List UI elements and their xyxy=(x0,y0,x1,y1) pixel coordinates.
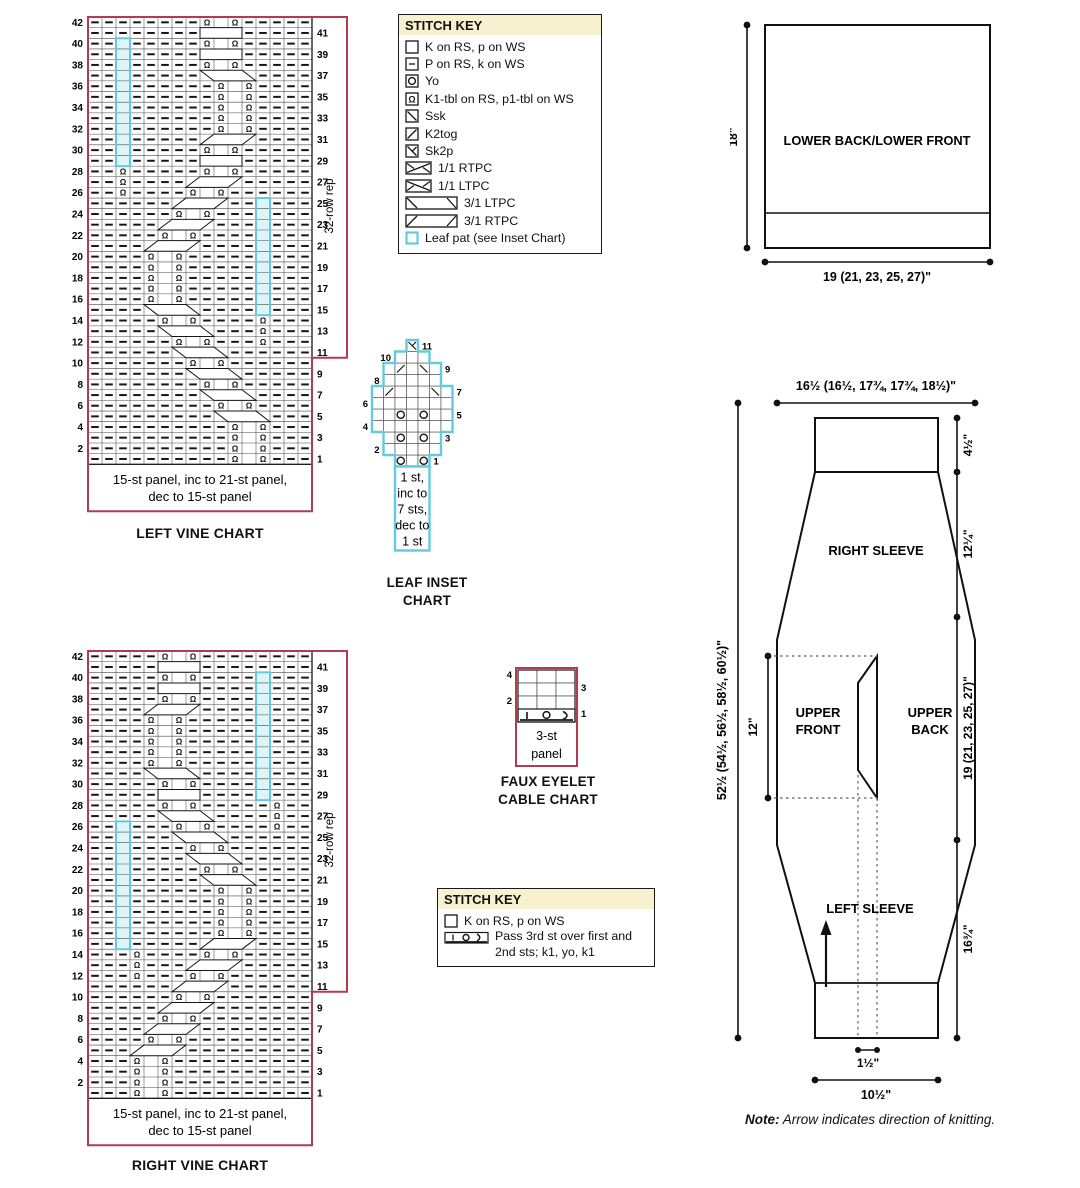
svg-text:Ω: Ω xyxy=(134,951,141,960)
svg-text:34: 34 xyxy=(72,737,84,748)
svg-text:12": 12" xyxy=(746,717,760,736)
svg-text:12: 12 xyxy=(72,337,84,348)
rtpc11-symbol-icon xyxy=(405,161,432,175)
leaf-inset-chart-svg: 11975311086421 st,inc to7 sts,dec to1 st xyxy=(352,335,502,567)
right-vine-caption-2: dec to 15-st panel xyxy=(148,1123,251,1138)
key-entry-ltpc11: 1/1 LTPC xyxy=(405,177,595,194)
left-vine-chart: ΩΩΩΩΩΩΩΩΩΩΩΩΩΩΩΩΩΩΩΩΩΩΩΩΩΩΩΩΩΩΩΩΩΩΩΩΩΩΩΩ… xyxy=(62,14,362,559)
svg-text:Ω: Ω xyxy=(190,189,197,198)
svg-text:Ω: Ω xyxy=(218,844,225,853)
svg-text:Ω: Ω xyxy=(232,423,239,432)
leaf-inset-title-1: LEAF INSET xyxy=(352,575,502,590)
svg-text:Ω: Ω xyxy=(176,823,183,832)
svg-text:Ω: Ω xyxy=(134,1068,141,1077)
svg-text:1: 1 xyxy=(581,709,587,720)
svg-text:Ω: Ω xyxy=(190,801,197,810)
svg-text:33: 33 xyxy=(317,114,329,125)
svg-text:14: 14 xyxy=(72,316,84,327)
svg-text:17: 17 xyxy=(317,284,329,295)
svg-text:Ω: Ω xyxy=(162,1014,169,1023)
faux-eyelet-generated: 42313-stpanel xyxy=(507,668,587,766)
svg-text:Ω: Ω xyxy=(176,993,183,1002)
svg-text:Ω: Ω xyxy=(232,61,239,70)
svg-text:Ω: Ω xyxy=(204,951,211,960)
pass3-symbol-icon xyxy=(444,931,489,945)
svg-text:28: 28 xyxy=(72,167,84,178)
svg-text:Ω: Ω xyxy=(204,210,211,219)
upper-back-label-1: UPPER xyxy=(908,705,953,720)
key-entry-k: K on RS, p on WS xyxy=(405,38,595,55)
svg-text:Ω: Ω xyxy=(246,919,253,928)
left-vine-chart-svg: ΩΩΩΩΩΩΩΩΩΩΩΩΩΩΩΩΩΩΩΩΩΩΩΩΩΩΩΩΩΩΩΩΩΩΩΩΩΩΩΩ… xyxy=(62,14,362,516)
top-cuff xyxy=(815,418,938,472)
svg-text:Ω: Ω xyxy=(260,317,267,326)
svg-text:Ω: Ω xyxy=(204,61,211,70)
svg-text:Ω: Ω xyxy=(162,231,169,240)
svg-text:Ω: Ω xyxy=(232,18,239,27)
svg-text:Ω: Ω xyxy=(232,951,239,960)
svg-text:9: 9 xyxy=(317,369,323,380)
key-entry-k1tbl: ΩK1-tbl on RS, p1-tbl on WS xyxy=(405,90,595,107)
lower-schematic-height-dim: 18" xyxy=(730,22,750,252)
right-dim-column: 4½" 12¼" 19 (21, 23, 25, 27)" 16¾" xyxy=(954,415,975,1042)
svg-text:19 (21, 23, 25, 27)": 19 (21, 23, 25, 27)" xyxy=(823,270,931,284)
key-entry-label: K on RS, p on WS xyxy=(464,914,565,928)
svg-text:Ω: Ω xyxy=(218,887,225,896)
svg-text:7 sts,: 7 sts, xyxy=(397,503,427,517)
svg-text:Ω: Ω xyxy=(190,780,197,789)
svg-text:18: 18 xyxy=(72,907,84,918)
svg-text:2: 2 xyxy=(507,696,512,707)
svg-text:Ω: Ω xyxy=(134,1078,141,1087)
svg-text:Ω: Ω xyxy=(176,274,183,283)
svg-text:9: 9 xyxy=(445,364,450,375)
svg-text:19: 19 xyxy=(317,263,329,274)
right-vine-chart: ΩΩΩΩΩΩΩΩΩΩΩΩΩΩΩΩΩΩΩΩΩΩΩΩΩΩΩΩΩΩΩΩΩΩΩΩΩΩΩΩ… xyxy=(62,648,362,1188)
stitch-key-2-list: K on RS, p on WSPass 3rd st over first a… xyxy=(438,909,654,966)
svg-text:Ω: Ω xyxy=(148,295,155,304)
svg-text:2: 2 xyxy=(374,445,379,456)
svg-text:Ω: Ω xyxy=(162,1078,169,1087)
svg-text:Ω: Ω xyxy=(190,652,197,661)
svg-text:31: 31 xyxy=(317,135,329,146)
svg-text:3: 3 xyxy=(445,433,450,444)
svg-text:Ω: Ω xyxy=(218,919,225,928)
svg-text:Ω: Ω xyxy=(204,993,211,1002)
key-entry-label: P on RS, k on WS xyxy=(425,57,525,71)
svg-text:1 st,: 1 st, xyxy=(400,471,424,485)
svg-text:16: 16 xyxy=(72,295,84,306)
svg-text:Ω: Ω xyxy=(246,402,253,411)
svg-text:Ω: Ω xyxy=(148,727,155,736)
svg-text:18: 18 xyxy=(72,273,84,284)
svg-text:Ω: Ω xyxy=(176,1036,183,1045)
svg-text:Ω: Ω xyxy=(232,434,239,443)
svg-text:1: 1 xyxy=(317,1088,323,1099)
upper-front-label-2: FRONT xyxy=(796,722,841,737)
svg-text:5: 5 xyxy=(317,412,323,423)
svg-text:3: 3 xyxy=(317,1067,323,1078)
svg-text:41: 41 xyxy=(317,28,329,39)
svg-text:Ω: Ω xyxy=(260,434,267,443)
svg-text:Ω: Ω xyxy=(162,801,169,810)
svg-text:Ω: Ω xyxy=(274,812,281,821)
svg-text:39: 39 xyxy=(317,684,329,695)
svg-text:Ω: Ω xyxy=(148,748,155,757)
svg-text:Ω: Ω xyxy=(246,114,253,123)
svg-text:Ω: Ω xyxy=(204,40,211,49)
rtpc31-symbol-icon xyxy=(405,214,458,228)
key-entry-rtpc11: 1/1 RTPC xyxy=(405,160,595,177)
left-sleeve-label: LEFT SLEEVE xyxy=(826,901,914,916)
svg-text:Ω: Ω xyxy=(218,972,225,981)
key-entry-label: K1-tbl on RS, p1-tbl on WS xyxy=(425,92,574,106)
right-vine-caption-1: 15-st panel, inc to 21-st panel, xyxy=(113,1106,287,1121)
stitch-key-1-title: STITCH KEY xyxy=(399,15,601,35)
svg-text:Ω: Ω xyxy=(260,338,267,347)
svg-text:Ω: Ω xyxy=(232,865,239,874)
svg-text:10½": 10½" xyxy=(861,1088,891,1102)
svg-text:panel: panel xyxy=(531,747,562,761)
svg-text:41: 41 xyxy=(317,662,329,673)
svg-text:Ω: Ω xyxy=(204,823,211,832)
cap-depth-dim: 12¼" xyxy=(961,529,975,558)
svg-text:7: 7 xyxy=(457,387,462,398)
svg-text:Ω: Ω xyxy=(120,167,127,176)
svg-text:Ω: Ω xyxy=(162,652,169,661)
svg-text:31: 31 xyxy=(317,769,329,780)
svg-text:Ω: Ω xyxy=(148,285,155,294)
right-vine-chart-svg: ΩΩΩΩΩΩΩΩΩΩΩΩΩΩΩΩΩΩΩΩΩΩΩΩΩΩΩΩΩΩΩΩΩΩΩΩΩΩΩΩ… xyxy=(62,648,362,1150)
ltpc31-symbol-icon xyxy=(405,196,458,210)
svg-text:Ω: Ω xyxy=(134,961,141,970)
svg-text:1: 1 xyxy=(434,456,440,467)
svg-text:Ω: Ω xyxy=(232,455,239,464)
svg-text:10: 10 xyxy=(72,993,84,1004)
svg-text:Ω: Ω xyxy=(408,94,415,104)
body-width-dim: 19 (21, 23, 25, 27)" xyxy=(961,676,975,780)
svg-text:Ω: Ω xyxy=(120,189,127,198)
k-symbol-icon xyxy=(444,914,458,928)
svg-text:32: 32 xyxy=(72,124,84,135)
svg-text:3: 3 xyxy=(581,683,586,694)
svg-text:Ω: Ω xyxy=(176,748,183,757)
svg-text:3-st: 3-st xyxy=(536,729,557,743)
ltpc11-symbol-icon xyxy=(405,179,432,193)
lower-schematic-label: LOWER BACK/LOWER FRONT xyxy=(784,133,971,148)
svg-text:4: 4 xyxy=(363,422,369,433)
key-entry-ssk: Ssk xyxy=(405,108,595,125)
svg-text:Ω: Ω xyxy=(176,285,183,294)
svg-text:Ω: Ω xyxy=(190,1014,197,1023)
svg-text:16: 16 xyxy=(72,929,84,940)
svg-text:40: 40 xyxy=(72,673,84,684)
svg-text:Ω: Ω xyxy=(176,210,183,219)
key-entry-k2tog: K2tog xyxy=(405,125,595,142)
svg-text:8: 8 xyxy=(77,380,83,391)
sk2p-symbol-icon xyxy=(405,144,419,158)
svg-text:Ω: Ω xyxy=(232,380,239,389)
left-vine-rep-label: 32-row rep xyxy=(324,179,336,234)
svg-text:Ω: Ω xyxy=(260,327,267,336)
svg-text:33: 33 xyxy=(317,748,329,759)
svg-text:Ω: Ω xyxy=(162,1068,169,1077)
svg-text:21: 21 xyxy=(317,875,329,886)
svg-text:Ω: Ω xyxy=(260,444,267,453)
left-vine-chart-title: LEFT VINE CHART xyxy=(80,525,320,541)
svg-text:Ω: Ω xyxy=(162,1057,169,1066)
faux-eyelet-chart-svg: 42313-stpanel xyxy=(488,662,608,768)
faux-eyelet-title-2: CABLE CHART xyxy=(488,792,608,807)
svg-text:Ω: Ω xyxy=(204,865,211,874)
note-text: Arrow indicates direction of knitting. xyxy=(780,1112,996,1127)
svg-text:Ω: Ω xyxy=(190,359,197,368)
svg-text:Ω: Ω xyxy=(190,317,197,326)
svg-text:Ω: Ω xyxy=(162,674,169,683)
p-symbol-icon xyxy=(405,57,419,71)
svg-text:13: 13 xyxy=(317,327,329,338)
svg-text:14: 14 xyxy=(72,950,84,961)
svg-text:Ω: Ω xyxy=(232,146,239,155)
svg-text:Ω: Ω xyxy=(218,402,225,411)
svg-text:8: 8 xyxy=(374,376,379,387)
svg-text:10: 10 xyxy=(72,359,84,370)
svg-text:Ω: Ω xyxy=(274,823,281,832)
key-entry-label: Leaf pat (see Inset Chart) xyxy=(425,231,566,245)
key-entry-label: K on RS, p on WS xyxy=(425,40,526,54)
svg-text:Ω: Ω xyxy=(162,317,169,326)
svg-text:Ω: Ω xyxy=(148,253,155,262)
svg-text:9: 9 xyxy=(317,1003,323,1014)
svg-text:Ω: Ω xyxy=(148,759,155,768)
svg-text:Ω: Ω xyxy=(162,695,169,704)
key-entry-label: 3/1 LTPC xyxy=(464,196,515,210)
svg-text:Ω: Ω xyxy=(232,444,239,453)
svg-text:29: 29 xyxy=(317,790,329,801)
k1tbl-symbol-icon: Ω xyxy=(405,92,419,106)
svg-text:Ω: Ω xyxy=(260,423,267,432)
svg-text:8: 8 xyxy=(77,1014,83,1025)
right-vine-chart-title: RIGHT VINE CHART xyxy=(80,1157,320,1173)
svg-text:42: 42 xyxy=(72,18,84,29)
svg-text:Ω: Ω xyxy=(246,897,253,906)
svg-text:Ω: Ω xyxy=(218,897,225,906)
svg-text:Ω: Ω xyxy=(204,18,211,27)
svg-text:Ω: Ω xyxy=(274,801,281,810)
stitch-key-2: STITCH KEY K on RS, p on WSPass 3rd st o… xyxy=(437,888,655,967)
svg-text:Ω: Ω xyxy=(162,780,169,789)
svg-text:26: 26 xyxy=(72,188,84,199)
svg-text:1½": 1½" xyxy=(857,1056,879,1070)
svg-text:Ω: Ω xyxy=(204,167,211,176)
svg-text:24: 24 xyxy=(72,210,84,221)
svg-text:20: 20 xyxy=(72,252,84,263)
svg-text:inc to: inc to xyxy=(397,487,427,501)
svg-text:Ω: Ω xyxy=(176,738,183,747)
svg-text:13: 13 xyxy=(317,961,329,972)
ssk-symbol-icon xyxy=(405,109,419,123)
svg-text:Ω: Ω xyxy=(148,1036,155,1045)
note-prefix: Note: xyxy=(745,1112,780,1127)
svg-text:26: 26 xyxy=(72,822,84,833)
svg-text:5: 5 xyxy=(457,410,463,421)
key-entry-label: Yo xyxy=(425,74,439,88)
svg-text:37: 37 xyxy=(317,705,329,716)
svg-text:15: 15 xyxy=(317,939,329,950)
svg-text:24: 24 xyxy=(72,844,84,855)
svg-text:Ω: Ω xyxy=(260,455,267,464)
svg-text:20: 20 xyxy=(72,886,84,897)
svg-text:10: 10 xyxy=(380,353,391,364)
svg-text:22: 22 xyxy=(72,865,84,876)
svg-text:Ω: Ω xyxy=(218,125,225,134)
svg-text:Ω: Ω xyxy=(190,972,197,981)
svg-text:15: 15 xyxy=(317,305,329,316)
leaf-symbol-icon xyxy=(405,231,419,245)
key-entry-ltpc31: 3/1 LTPC xyxy=(405,195,595,212)
svg-text:18": 18" xyxy=(730,127,740,146)
svg-text:Ω: Ω xyxy=(176,759,183,768)
svg-text:6: 6 xyxy=(363,399,368,410)
svg-text:30: 30 xyxy=(72,146,84,157)
svg-text:Ω: Ω xyxy=(190,674,197,683)
svg-text:dec to: dec to xyxy=(395,519,429,533)
svg-text:16½ (16½, 17¾, 17¾, 18½)": 16½ (16½, 17¾, 17¾, 18½)" xyxy=(796,379,956,393)
svg-text:4: 4 xyxy=(77,1057,83,1068)
note: Note: Arrow indicates direction of knitt… xyxy=(745,1112,1080,1127)
key-entry-label: K2tog xyxy=(425,127,457,141)
svg-text:Ω: Ω xyxy=(176,263,183,272)
svg-text:Ω: Ω xyxy=(134,1057,141,1066)
svg-text:36: 36 xyxy=(72,82,84,93)
svg-text:Ω: Ω xyxy=(218,114,225,123)
svg-text:Ω: Ω xyxy=(176,716,183,725)
yo-symbol-icon xyxy=(405,74,419,88)
key-entry-label: Sk2p xyxy=(425,144,453,158)
svg-text:38: 38 xyxy=(72,60,84,71)
svg-text:28: 28 xyxy=(72,801,84,812)
svg-text:5: 5 xyxy=(317,1046,323,1057)
key-entry-rtpc31: 3/1 RTPC xyxy=(405,212,595,229)
stitch-key-1: STITCH KEY K on RS, p on WSP on RS, k on… xyxy=(398,14,602,254)
svg-text:42: 42 xyxy=(72,652,84,663)
svg-text:Ω: Ω xyxy=(148,738,155,747)
svg-text:37: 37 xyxy=(317,71,329,82)
svg-text:Ω: Ω xyxy=(190,231,197,240)
svg-text:Ω: Ω xyxy=(176,253,183,262)
svg-text:12: 12 xyxy=(72,971,84,982)
svg-text:Ω: Ω xyxy=(176,338,183,347)
svg-text:Ω: Ω xyxy=(204,380,211,389)
svg-text:Ω: Ω xyxy=(246,93,253,102)
svg-text:Ω: Ω xyxy=(218,908,225,917)
svg-text:34: 34 xyxy=(72,103,84,114)
svg-text:Ω: Ω xyxy=(176,295,183,304)
svg-text:35: 35 xyxy=(317,92,329,103)
right-sleeve-label: RIGHT SLEEVE xyxy=(828,543,924,558)
svg-text:Ω: Ω xyxy=(218,93,225,102)
left-vine-chart-generated: ΩΩΩΩΩΩΩΩΩΩΩΩΩΩΩΩΩΩΩΩΩΩΩΩΩΩΩΩΩΩΩΩΩΩΩΩΩΩΩΩ… xyxy=(72,17,347,511)
key-entry-pass3: Pass 3rd st over first and 2nd sts; k1, … xyxy=(444,929,648,960)
left-vine-caption-2: dec to 15-st panel xyxy=(148,489,251,504)
svg-text:Ω: Ω xyxy=(218,82,225,91)
key-entry-label: 1/1 LTPC xyxy=(438,179,489,193)
svg-text:Ω: Ω xyxy=(232,40,239,49)
top-width-dim: 16½ (16½, 17¾, 17¾, 18½)" xyxy=(774,379,979,406)
leaf-inset-title-2: CHART xyxy=(352,593,502,608)
svg-text:Ω: Ω xyxy=(218,359,225,368)
svg-text:4: 4 xyxy=(507,670,513,681)
k-symbol-icon xyxy=(405,40,419,54)
svg-text:Ω: Ω xyxy=(120,178,127,187)
main-schematic: RIGHT SLEEVE UPPER FRONT UPPER BACK LEFT… xyxy=(705,370,1080,1115)
svg-text:11: 11 xyxy=(422,341,433,352)
svg-text:52½ (54½, 56½, 58½, 60½)": 52½ (54½, 56½, 58½, 60½)" xyxy=(715,640,729,800)
svg-text:38: 38 xyxy=(72,694,84,705)
svg-text:7: 7 xyxy=(317,391,323,402)
svg-text:1 st: 1 st xyxy=(402,535,423,549)
key-entry-label: Ssk xyxy=(425,109,446,123)
svg-text:2: 2 xyxy=(77,1078,83,1089)
lower-schematic: LOWER BACK/LOWER FRONT 18" 19 (21, 23, 2… xyxy=(730,10,1080,296)
svg-text:21: 21 xyxy=(317,241,329,252)
upper-front-label-1: UPPER xyxy=(796,705,841,720)
stitch-key-1-list: K on RS, p on WSP on RS, k on WSYoΩK1-tb… xyxy=(399,35,601,253)
left-vine-caption-1: 15-st panel, inc to 21-st panel, xyxy=(113,472,287,487)
svg-text:Ω: Ω xyxy=(246,887,253,896)
cuff-depth-dim: 4½" xyxy=(961,434,975,456)
key-entry-k: K on RS, p on WS xyxy=(444,912,648,929)
svg-text:22: 22 xyxy=(72,231,84,242)
cuff-gap-dim: 1½" xyxy=(855,1047,880,1070)
key-entry-p: P on RS, k on WS xyxy=(405,55,595,72)
svg-text:Ω: Ω xyxy=(232,167,239,176)
right-vine-rep-label: 32-row rep xyxy=(324,813,336,868)
svg-text:32: 32 xyxy=(72,758,84,769)
sleeve-length-dim: 16¾" xyxy=(961,924,975,953)
svg-text:40: 40 xyxy=(72,39,84,50)
svg-text:Ω: Ω xyxy=(204,146,211,155)
svg-text:Ω: Ω xyxy=(218,104,225,113)
svg-text:39: 39 xyxy=(317,50,329,61)
upper-back-label-2: BACK xyxy=(911,722,949,737)
key-entry-label: Pass 3rd st over first and 2nd sts; k1, … xyxy=(495,929,645,960)
svg-text:Ω: Ω xyxy=(246,125,253,134)
svg-text:Ω: Ω xyxy=(148,274,155,283)
leaf-inset-generated: 11975311086421 st,inc to7 sts,dec to1 st xyxy=(363,340,463,551)
key-entry-sk2p: Sk2p xyxy=(405,142,595,159)
svg-text:Ω: Ω xyxy=(218,929,225,938)
svg-text:1: 1 xyxy=(317,454,323,465)
svg-text:29: 29 xyxy=(317,156,329,167)
svg-text:30: 30 xyxy=(72,780,84,791)
svg-text:Ω: Ω xyxy=(176,727,183,736)
svg-text:36: 36 xyxy=(72,716,84,727)
svg-text:Ω: Ω xyxy=(134,972,141,981)
svg-text:7: 7 xyxy=(317,1025,323,1036)
svg-text:17: 17 xyxy=(317,918,329,929)
svg-text:Ω: Ω xyxy=(246,82,253,91)
svg-text:Ω: Ω xyxy=(246,929,253,938)
svg-text:Ω: Ω xyxy=(148,263,155,272)
key-entry-yo: Yo xyxy=(405,73,595,90)
knitting-pattern-page: { "colors": { "red": "#b43a50", "cyan": … xyxy=(0,0,1080,1188)
faux-eyelet-title-1: FAUX EYELET xyxy=(488,774,608,789)
svg-text:Ω: Ω xyxy=(204,338,211,347)
svg-text:Ω: Ω xyxy=(190,844,197,853)
key-entry-leaf: Leaf pat (see Inset Chart) xyxy=(405,229,595,246)
faux-eyelet-chart: 42313-stpanel FAUX EYELET CABLE CHART xyxy=(488,662,608,807)
